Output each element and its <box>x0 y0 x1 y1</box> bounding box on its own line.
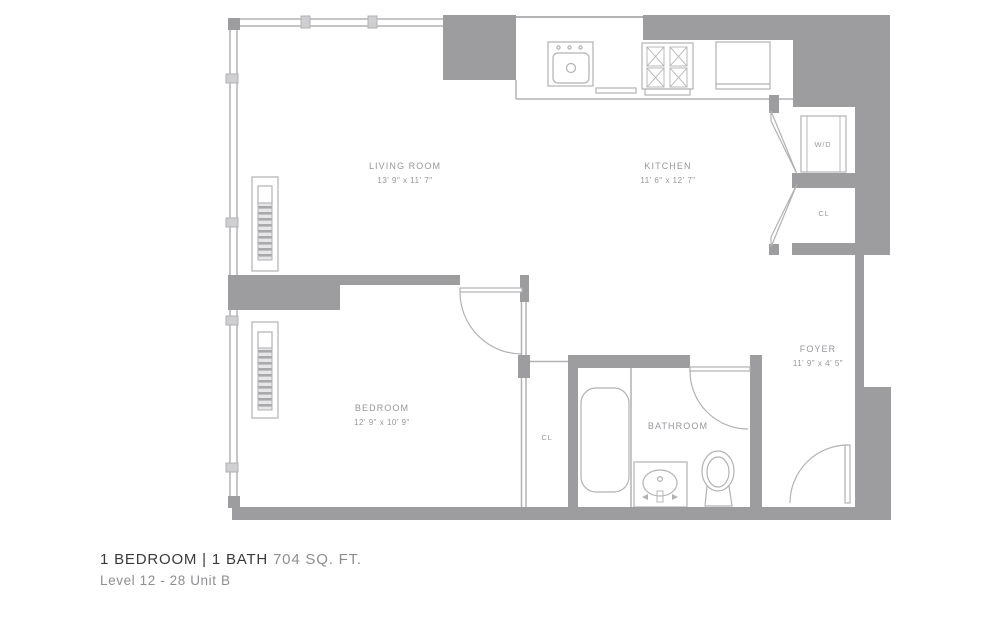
wall-corner-post-bottom-left <box>228 496 240 508</box>
entry-door <box>790 445 850 503</box>
plan-title-rooms: 1 BEDROOM | 1 BATH <box>100 551 268 568</box>
stove <box>642 43 693 95</box>
wd-closet-door <box>771 111 797 174</box>
foyer-dims: 11' 9" x 4' 5" <box>793 359 843 368</box>
wall-right-thin <box>855 255 864 387</box>
faucet <box>658 477 663 482</box>
wall-right-lower <box>855 387 891 508</box>
wall-living-bedroom-thin <box>340 275 460 285</box>
kitchen-dims: 11' 6" x 12' 7" <box>640 176 695 185</box>
window-mullion <box>226 463 238 472</box>
bathroom-door <box>690 367 750 429</box>
window-mullion <box>226 74 238 83</box>
wall-wd-door-post <box>769 95 779 113</box>
wall-bathroom-right <box>750 355 762 507</box>
living-room-dims: 13' 9" x 11' 7" <box>377 176 432 185</box>
refrigerator <box>716 42 770 89</box>
bedroom-door-swing <box>460 292 522 354</box>
plan-subtitle: Level 12 - 28 Unit B <box>100 573 362 588</box>
burner <box>670 47 687 66</box>
wall-bathroom-top <box>578 355 690 368</box>
floorplan-drawing: LIVING ROOM 13' 9" x 11' 7" KITCHEN 11' … <box>0 0 1000 641</box>
living-room-label: LIVING ROOM <box>369 161 441 171</box>
wall-wd-cl-divider <box>792 173 855 188</box>
entry-door-swing <box>790 445 848 503</box>
bathroom-vanity <box>634 462 687 507</box>
window-walls <box>226 16 443 507</box>
wall-living-bedroom-thick <box>228 275 340 310</box>
kitchen-label: KITCHEN <box>644 161 691 171</box>
dishwasher <box>596 88 636 93</box>
wall-corner-post-top-left <box>228 18 240 30</box>
window-mullion <box>226 316 238 325</box>
floorplan-canvas: LIVING ROOM 13' 9" x 11' 7" KITCHEN 11' … <box>0 0 1000 641</box>
plan-title: 1 BEDROOM | 1 BATH 704 SQ. FT. <box>100 551 362 568</box>
kitchen-sink <box>548 42 593 86</box>
bathtub <box>581 388 629 492</box>
wall-top-right-mass <box>793 15 890 107</box>
vanity-handle <box>672 494 678 500</box>
wall-bottom <box>232 507 891 520</box>
bedroom-closet-label: CL <box>541 433 552 442</box>
plan-title-area: 704 SQ. FT. <box>273 551 362 568</box>
burner <box>647 68 664 87</box>
bedroom-dims: 12' 9" x 10' 9" <box>354 418 410 427</box>
wall-right-upper <box>855 107 890 255</box>
cl-closet-door <box>771 184 797 247</box>
foyer-closet-label: CL <box>818 209 829 218</box>
bedroom-door-leaf <box>460 288 522 292</box>
washer-dryer-label: W/D <box>815 140 832 149</box>
radiator-living-room <box>252 177 278 271</box>
bathroom-sink <box>643 470 677 496</box>
wall-closet-bottom <box>792 243 890 255</box>
radiator-bedroom <box>252 322 278 418</box>
window-mullion <box>368 16 377 28</box>
burner <box>670 68 687 87</box>
solid-walls <box>228 15 891 520</box>
vanity-handle <box>642 494 648 500</box>
toilet <box>702 451 734 506</box>
foyer-label: FOYER <box>800 344 837 354</box>
wall-closet-post <box>518 355 530 378</box>
window-mullion <box>301 16 310 28</box>
bedroom-door <box>460 288 522 354</box>
window-mullion <box>226 218 238 227</box>
bathroom-label: BATHROOM <box>648 421 708 431</box>
bathroom-door-leaf <box>690 367 750 371</box>
bedroom-label: BEDROOM <box>355 403 409 413</box>
burner <box>647 47 664 66</box>
plan-footer: 1 BEDROOM | 1 BATH 704 SQ. FT. Level 12 … <box>100 551 362 588</box>
entry-door-leaf <box>845 445 850 503</box>
wall-tub-divider <box>568 355 578 507</box>
wall-top-column <box>443 15 516 80</box>
